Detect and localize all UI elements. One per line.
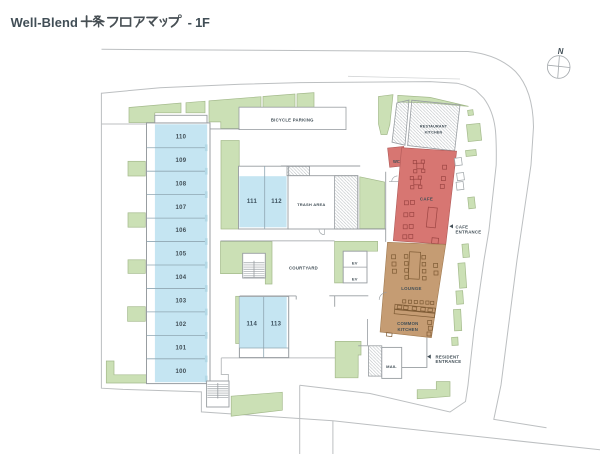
svg-text:113: 113 — [271, 321, 282, 327]
svg-text:EV: EV — [352, 276, 358, 281]
svg-text:103: 103 — [176, 299, 187, 305]
svg-text:ENTRANCE: ENTRANCE — [436, 359, 462, 364]
svg-text:105: 105 — [176, 252, 187, 258]
svg-text:LOUNGE: LOUNGE — [401, 286, 422, 291]
svg-text:EV: EV — [352, 261, 358, 266]
svg-text:RESTAURANT: RESTAURANT — [420, 125, 448, 129]
svg-text:107: 107 — [176, 205, 187, 211]
svg-text:N: N — [558, 47, 564, 56]
svg-text:100: 100 — [176, 369, 187, 375]
svg-text:- 1F: - 1F — [188, 15, 210, 30]
svg-text:114: 114 — [247, 321, 258, 327]
svg-text:Well-Blend: Well-Blend — [11, 15, 78, 30]
svg-text:COMMON: COMMON — [397, 321, 418, 326]
svg-text:102: 102 — [176, 322, 187, 328]
svg-text:WC: WC — [393, 159, 400, 164]
svg-text:KITCHEN: KITCHEN — [398, 327, 419, 332]
svg-text:TRASH AREA: TRASH AREA — [297, 202, 325, 207]
svg-text:106: 106 — [176, 228, 187, 234]
svg-text:112: 112 — [271, 199, 282, 205]
svg-text:104: 104 — [176, 275, 187, 281]
svg-text:ENTRANCE: ENTRANCE — [456, 229, 482, 234]
svg-text:CAFE: CAFE — [420, 196, 433, 201]
svg-text:101: 101 — [176, 346, 187, 352]
svg-text:COURTYARD: COURTYARD — [289, 265, 318, 270]
svg-text:108: 108 — [176, 181, 187, 187]
svg-text:BICYCLE PARKING: BICYCLE PARKING — [271, 118, 314, 123]
svg-text:110: 110 — [176, 134, 187, 140]
svg-text:109: 109 — [176, 158, 187, 164]
svg-text:MAIL: MAIL — [386, 364, 397, 369]
svg-text:KITCHEN: KITCHEN — [425, 130, 443, 134]
svg-text:111: 111 — [247, 199, 258, 205]
